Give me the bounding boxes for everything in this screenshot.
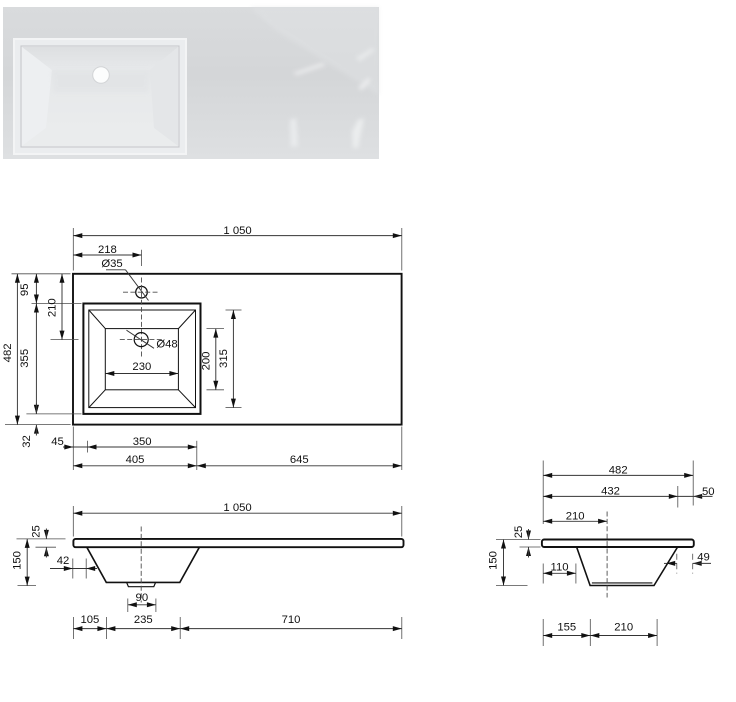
svg-text:315: 315 [218,349,230,368]
svg-text:32: 32 [21,435,33,448]
svg-text:210: 210 [566,510,585,522]
svg-text:482: 482 [2,343,14,362]
svg-text:210: 210 [614,622,633,634]
svg-text:45: 45 [51,436,64,448]
svg-text:432: 432 [601,485,620,497]
svg-text:405: 405 [126,454,145,466]
svg-text:230: 230 [132,361,151,373]
svg-text:90: 90 [136,592,149,604]
svg-text:645: 645 [290,454,309,466]
svg-text:710: 710 [282,614,301,626]
svg-text:1 050: 1 050 [223,225,251,237]
svg-text:150: 150 [11,551,23,570]
svg-text:150: 150 [488,551,500,570]
svg-text:482: 482 [609,464,628,476]
svg-text:49: 49 [697,551,710,563]
svg-text:105: 105 [80,614,99,626]
svg-text:110: 110 [551,561,569,573]
svg-text:95: 95 [19,284,31,297]
svg-text:210: 210 [46,298,58,317]
svg-text:1 050: 1 050 [223,502,251,514]
svg-text:50: 50 [702,486,715,498]
svg-text:25: 25 [31,525,43,538]
svg-text:218: 218 [98,244,117,256]
svg-text:200: 200 [200,352,212,371]
svg-text:42: 42 [57,555,70,567]
svg-text:155: 155 [557,622,576,634]
svg-text:Ø48: Ø48 [156,338,177,350]
svg-text:25: 25 [513,526,525,539]
svg-text:235: 235 [134,614,153,626]
svg-text:Ø35: Ø35 [101,258,122,270]
svg-text:350: 350 [133,436,152,448]
svg-text:355: 355 [19,349,31,368]
